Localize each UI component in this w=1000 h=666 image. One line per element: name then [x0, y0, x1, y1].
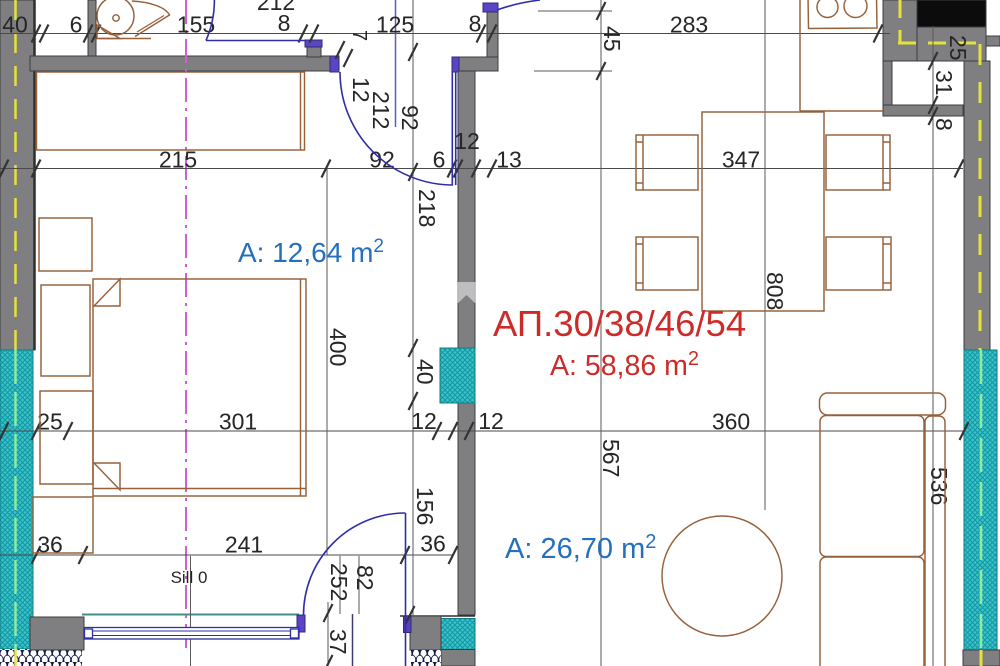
svg-text:212: 212: [257, 0, 295, 15]
svg-text:12: 12: [454, 128, 480, 154]
svg-text:808: 808: [762, 272, 788, 310]
svg-text:8: 8: [931, 118, 957, 131]
svg-text:45: 45: [599, 26, 625, 52]
svg-text:536: 536: [926, 467, 952, 505]
svg-text:301: 301: [219, 409, 257, 435]
svg-text:218: 218: [414, 189, 440, 227]
svg-text:36: 36: [420, 531, 446, 557]
svg-text:347: 347: [722, 147, 760, 173]
svg-text:13: 13: [496, 147, 522, 173]
svg-text:283: 283: [670, 12, 708, 38]
svg-text:АП.30/38/46/54: АП.30/38/46/54: [493, 303, 746, 344]
svg-text:31: 31: [931, 70, 957, 96]
svg-text:Sill 0: Sill 0: [171, 568, 208, 587]
svg-text:6: 6: [70, 12, 83, 38]
svg-text:400: 400: [325, 328, 351, 366]
svg-text:25: 25: [945, 35, 971, 61]
svg-text:8: 8: [469, 11, 482, 37]
svg-text:6: 6: [433, 147, 446, 173]
svg-text:A: 58,86 m2: A: 58,86 m2: [550, 348, 699, 382]
svg-text:25: 25: [37, 409, 63, 435]
svg-text:241: 241: [225, 532, 263, 558]
svg-text:212: 212: [368, 91, 394, 129]
svg-text:360: 360: [712, 409, 750, 435]
svg-text:7: 7: [348, 30, 370, 41]
svg-text:125: 125: [376, 12, 414, 38]
svg-text:92: 92: [397, 105, 423, 131]
svg-text:A: 12,64 m2: A: 12,64 m2: [238, 236, 384, 268]
svg-text:156: 156: [412, 487, 438, 525]
svg-text:40: 40: [2, 12, 28, 38]
svg-text:82: 82: [352, 565, 378, 591]
svg-text:252: 252: [326, 563, 352, 601]
svg-text:12: 12: [411, 408, 437, 434]
svg-text:A: 26,70 m2: A: 26,70 m2: [505, 531, 656, 565]
svg-text:40: 40: [412, 359, 438, 385]
svg-text:567: 567: [598, 439, 624, 477]
svg-text:12: 12: [478, 408, 504, 434]
svg-text:37: 37: [325, 629, 351, 655]
